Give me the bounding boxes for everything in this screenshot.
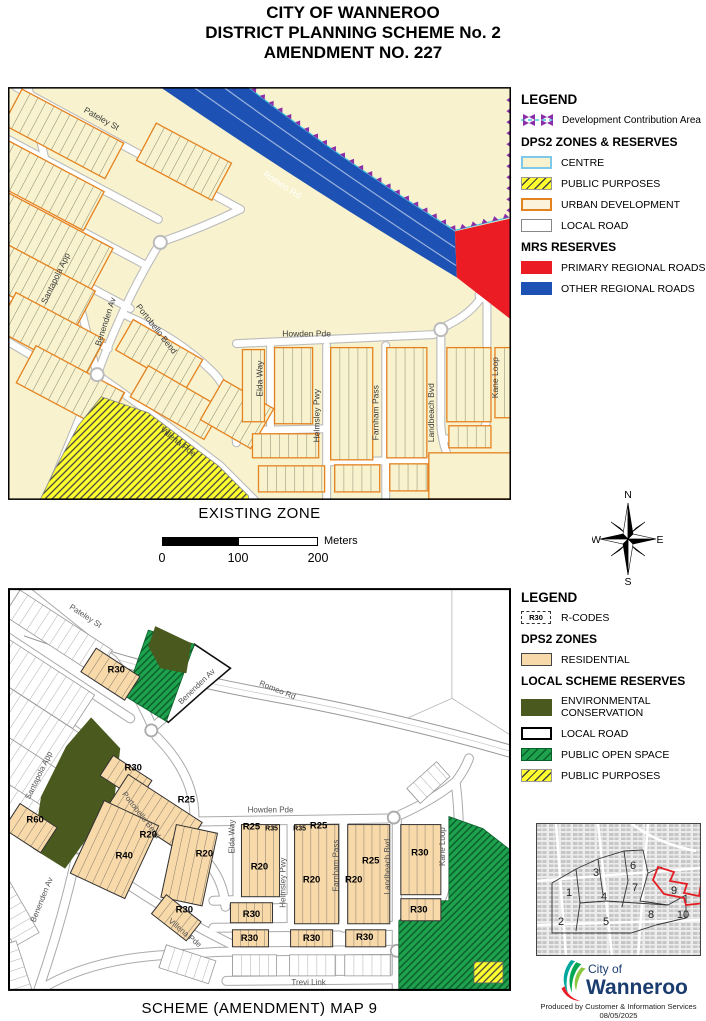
development-contribution-area-icon xyxy=(521,113,555,127)
street-label: Landbeach Bvd xyxy=(426,383,436,442)
rcode-label: R25 xyxy=(243,822,261,833)
rcode-label: R60 xyxy=(26,815,43,826)
local-scheme-reserves-heading: LOCAL SCHEME RESERVES xyxy=(521,674,706,688)
map-index-number: 6 xyxy=(630,860,636,872)
locality-inset-map: 12345678910 xyxy=(536,823,701,956)
street-label: Kane Loop xyxy=(438,827,447,866)
produced-by: Produced by Customer & Information Servi… xyxy=(531,1002,706,1011)
street-label: Kane Loop xyxy=(490,357,500,398)
scale-unit: Meters xyxy=(324,535,358,547)
city-of-wanneroo-logo-icon xyxy=(556,958,588,1002)
scale-bar-black-segment xyxy=(162,537,238,546)
rcode-label: R-CODES xyxy=(561,612,609,624)
street-label: Elda Way xyxy=(255,360,265,397)
other-regional-roads-swatch xyxy=(521,282,552,295)
compass-west-label: W xyxy=(592,534,601,546)
map-sheet: CITY OF WANNEROO DISTRICT PLANNING SCHEM… xyxy=(0,0,706,1021)
street-label: Elda Way xyxy=(227,820,236,854)
rcode-label: R30 xyxy=(411,848,428,859)
title-line-1: CITY OF WANNEROO xyxy=(0,3,706,23)
street-label: Helmsley Pwy xyxy=(312,388,322,442)
map-index-number: 3 xyxy=(593,867,599,879)
rcode-label: R30 xyxy=(410,905,427,916)
public-purposes-lot xyxy=(474,962,503,983)
rcode-label: R25 xyxy=(178,795,196,806)
scheme-map-caption: SCHEME (AMENDMENT) MAP 9 xyxy=(8,1000,511,1017)
date: 08/05/2025 xyxy=(531,1011,706,1020)
environmental-conservation-swatch xyxy=(521,699,552,716)
rcode-label: R20 xyxy=(140,830,157,841)
public-purposes-label: PUBLIC PURPOSES xyxy=(561,770,660,782)
street-label: Howden Pde xyxy=(248,806,294,815)
street-label: Howden Pde xyxy=(282,329,331,339)
public-purposes-swatch xyxy=(521,769,552,782)
mrs-reserves-heading: MRS RESERVES xyxy=(521,240,706,254)
rcode-label: R20 xyxy=(345,875,362,886)
legend-heading: LEGEND xyxy=(521,92,706,107)
scale-bar: Meters 0 100 200 xyxy=(0,530,520,576)
local-road-label: LOCAL ROAD xyxy=(561,220,628,232)
urban-development-swatch xyxy=(521,198,552,211)
compass-rose: N S E W xyxy=(592,486,664,586)
street-label: Trevi Link xyxy=(291,978,326,987)
legend-scheme: LEGEND R30 R-CODES DPS2 ZONES RESIDENTIA… xyxy=(521,590,706,790)
map-index-number: 7 xyxy=(632,882,638,894)
rcode-label: R30 xyxy=(107,664,124,675)
rcode-label: R35 xyxy=(293,826,306,833)
map-index-number: 8 xyxy=(648,909,654,921)
scheme-amendment-map: Pateley StRomeo RdBenenden AvSantapola A… xyxy=(8,588,511,991)
rcode-label: R30 xyxy=(176,905,193,916)
scale-bar-white-segment xyxy=(238,537,318,546)
other-regional-roads-label: OTHER REGIONAL ROADS xyxy=(561,283,695,295)
centre-swatch xyxy=(521,156,552,169)
rcode-label: R25 xyxy=(310,821,328,832)
compass-north-label: N xyxy=(624,489,632,501)
rcode-label: R20 xyxy=(303,875,320,886)
centre-label: CENTRE xyxy=(561,157,604,169)
credits: Produced by Customer & Information Servi… xyxy=(531,1002,706,1020)
rcode-label: R40 xyxy=(116,851,133,862)
logo-wanneroo: Wanneroo xyxy=(586,976,688,1000)
title-line-2: DISTRICT PLANNING SCHEME No. 2 xyxy=(0,23,706,43)
scale-tick-200: 200 xyxy=(298,551,338,565)
public-open-space-swatch xyxy=(521,748,552,761)
public-open-space-label: PUBLIC OPEN SPACE xyxy=(561,749,669,761)
street-label: Farnham Pass xyxy=(332,840,341,892)
local-road-label: LOCAL ROAD xyxy=(561,728,628,740)
rcode-label: R20 xyxy=(251,862,268,873)
rcode-label: R20 xyxy=(196,849,213,860)
environmental-conservation-label: ENVIRONMENTAL CONSERVATION xyxy=(561,695,651,719)
zones-reserves-heading: DPS2 ZONES & RESERVES xyxy=(521,135,706,149)
map-index-number: 1 xyxy=(566,887,572,899)
street-label: Helmsley Pwy xyxy=(279,858,288,908)
rcode-label: R30 xyxy=(356,932,373,943)
dca-label: Development Contribution Area xyxy=(562,115,701,126)
map-index-number: 9 xyxy=(671,885,677,897)
urban-development-label: URBAN DEVELOPMENT xyxy=(561,199,680,211)
page-title: CITY OF WANNEROO DISTRICT PLANNING SCHEM… xyxy=(0,3,706,63)
title-line-3: AMENDMENT NO. 227 xyxy=(0,43,706,63)
map-index-number: 5 xyxy=(603,916,609,928)
primary-regional-roads-label: PRIMARY REGIONAL ROADS xyxy=(561,262,706,274)
local-road-swatch xyxy=(521,727,552,740)
legend-existing: LEGEND Development Contribution Area DPS… xyxy=(521,92,706,303)
rcode-label: R25 xyxy=(362,856,380,867)
compass-south-label: S xyxy=(624,576,631,586)
public-purposes-swatch xyxy=(521,177,552,190)
legend-heading: LEGEND xyxy=(521,590,706,605)
scale-tick-100: 100 xyxy=(218,551,258,565)
rcode-label: R30 xyxy=(243,909,260,920)
map-index-number: 10 xyxy=(677,909,689,921)
street-label: Landbeach Bvd xyxy=(383,839,392,895)
logo-city-of: City of xyxy=(588,962,622,976)
map-index-number: 4 xyxy=(601,891,607,903)
existing-zone-map: Pateley StRomeo RdSantapola AppBenenden … xyxy=(8,87,511,500)
rcode-label: R30 xyxy=(241,933,258,944)
residential-label: RESIDENTIAL xyxy=(561,654,630,666)
public-purposes-label: PUBLIC PURPOSES xyxy=(561,178,660,190)
rcode-label: R30 xyxy=(303,933,320,944)
dps2-zones-heading: DPS2 ZONES xyxy=(521,632,706,646)
primary-regional-roads-swatch xyxy=(521,261,552,274)
rcode-swatch: R30 xyxy=(521,611,551,624)
local-road-swatch xyxy=(521,219,552,232)
residential-swatch xyxy=(521,653,552,666)
compass-east-label: E xyxy=(656,534,663,546)
rcode-label: R35 xyxy=(265,826,278,833)
scale-tick-0: 0 xyxy=(142,551,182,565)
street-label: Farnham Pass xyxy=(371,385,381,440)
rcode-label: R30 xyxy=(125,762,142,773)
map-index-number: 2 xyxy=(558,916,564,928)
existing-zone-caption: EXISTING ZONE xyxy=(8,505,511,522)
